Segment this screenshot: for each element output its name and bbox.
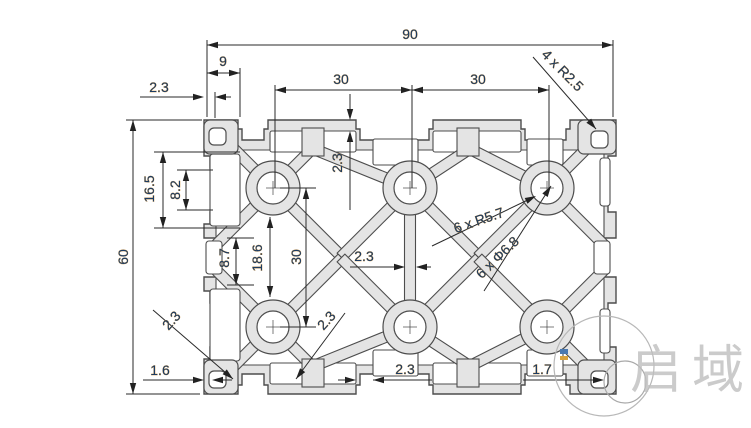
dim-top-lip: 2.3 bbox=[329, 153, 345, 173]
dim-arrow bbox=[160, 152, 166, 163]
dim-arrow bbox=[538, 87, 549, 93]
dim-arrow bbox=[412, 87, 423, 93]
corner-hole bbox=[209, 128, 226, 145]
dim-web-span: 18.6 bbox=[249, 244, 265, 271]
dim-slot-pitch-2: 30 bbox=[470, 71, 486, 87]
dim-arrow bbox=[215, 94, 226, 100]
profile-drawing-canvas: 90 9 2.3 30 30 4 x R2.5 2.3 60 16.5 8.2 … bbox=[0, 0, 751, 428]
stem bbox=[302, 128, 324, 156]
dim-arrow bbox=[229, 70, 240, 76]
dim-arrow bbox=[207, 70, 218, 76]
dim-arrow bbox=[130, 383, 136, 394]
dim-top-offset: 9 bbox=[219, 53, 227, 69]
dim-side-slot-opening: 8.2 bbox=[167, 180, 183, 200]
dim-slot-pitch-1: 30 bbox=[333, 71, 349, 87]
corner-hole bbox=[591, 131, 608, 148]
slot-pocket bbox=[210, 154, 240, 226]
dim-overall-width: 90 bbox=[402, 26, 418, 42]
dim-arrow bbox=[160, 217, 166, 228]
stem bbox=[457, 359, 479, 387]
watermark-logo-blue-mark bbox=[560, 349, 568, 354]
stem bbox=[457, 128, 479, 156]
dim-bottom-wall-right: 1.7 bbox=[532, 361, 552, 377]
dim-bottom-wall-left: 1.6 bbox=[150, 362, 170, 378]
stem bbox=[302, 359, 324, 387]
slot-pocket bbox=[600, 158, 610, 206]
dim-arrow bbox=[183, 170, 189, 181]
extrusion-section-drawing: 90 9 2.3 30 30 4 x R2.5 2.3 60 16.5 8.2 … bbox=[0, 0, 751, 428]
dim-side-pocket: 8.7 bbox=[216, 248, 232, 268]
watermark-logo-gold-mark bbox=[560, 356, 568, 360]
dim-diag-web-left: 2.3 bbox=[159, 308, 184, 333]
dim-arrow bbox=[401, 87, 412, 93]
dim-bottom-web: 2.3 bbox=[395, 361, 415, 377]
dim-arrow bbox=[347, 109, 353, 120]
dim-center-web: 2.3 bbox=[354, 248, 374, 264]
slot-pocket bbox=[210, 289, 240, 361]
dim-row-pitch: 30 bbox=[288, 249, 304, 265]
dim-arrow bbox=[193, 377, 204, 383]
dim-arrow bbox=[183, 199, 189, 210]
dim-arrow bbox=[130, 120, 136, 131]
dim-arrow bbox=[373, 377, 384, 383]
profile-body bbox=[204, 120, 616, 394]
dim-arrow bbox=[207, 42, 218, 48]
slot-pocket bbox=[594, 241, 610, 274]
watermark-brand-text: 启域 bbox=[630, 341, 751, 401]
web bbox=[405, 214, 416, 301]
dim-arrow bbox=[602, 42, 613, 48]
dim-arrow bbox=[275, 87, 286, 93]
dim-arrow bbox=[193, 94, 204, 100]
dim-corner-holes: 4 x R2.5 bbox=[539, 46, 587, 94]
dim-overall-height: 60 bbox=[115, 249, 131, 265]
dim-side-slot-outer: 16.5 bbox=[141, 175, 157, 202]
dim-wall-top-left: 2.3 bbox=[149, 79, 169, 95]
